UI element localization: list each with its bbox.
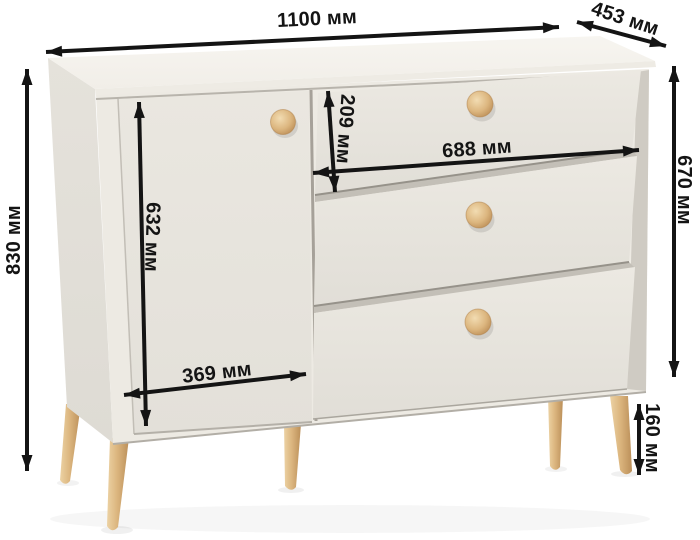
door-knob <box>271 110 296 135</box>
drawer-1-knob <box>467 91 493 117</box>
dim-label-width: 1100 мм <box>277 7 358 31</box>
drawer-3-knob <box>465 309 491 335</box>
dim-label-leg-height: 160 мм <box>642 403 662 473</box>
dim-label-body-height: 670 мм <box>674 155 694 225</box>
product-dimension-diagram: 1100 мм 453 мм 830 мм 670 мм 209 мм 688 … <box>0 0 700 540</box>
dim-label-top-drawer-height: 209 мм <box>333 94 358 165</box>
floor-shadow <box>50 505 650 533</box>
dim-label-drawer-width: 688 мм <box>442 136 513 161</box>
drawer-2-knob <box>466 202 492 228</box>
dim-label-door-height: 632 мм <box>141 202 163 272</box>
furniture-illustration <box>0 0 700 540</box>
dim-label-height-total: 830 мм <box>4 205 24 275</box>
